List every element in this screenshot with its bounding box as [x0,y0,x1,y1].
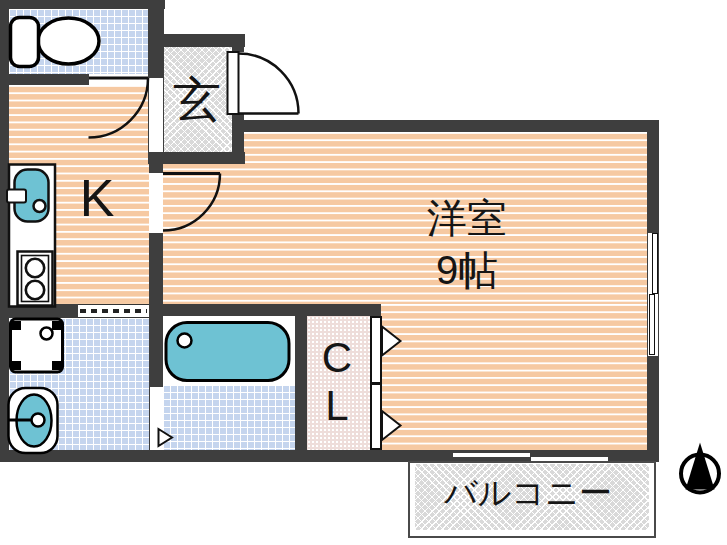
closet-label-line2: L [322,382,352,430]
wall-outer-left [0,0,9,462]
closet-label-line1: C [322,334,352,382]
window-right-pane-2 [649,294,655,355]
wall-outer-top [0,0,165,9]
opening-kitchen-main [149,173,163,233]
accordion-dashes [80,309,147,313]
main-room-name: 洋室 [427,192,507,244]
bathroom-tile [163,385,295,450]
balcony-label: バルコニー [444,472,612,515]
washroom-floor [9,318,149,450]
main-room-label: 洋室 9帖 [427,192,507,296]
wall-bath-closet [295,304,307,450]
balcony-sliding-door-pane-1 [453,453,530,457]
wall-entrance-top [148,34,245,47]
wall-toilet-bottom [8,74,89,85]
closet-door-divider [372,382,380,385]
opening-kitchen-entrance [149,78,163,152]
wall-entrance-bottom [148,152,245,164]
kitchen-label: K [80,165,115,233]
wall-washroom-top [8,304,79,318]
main-room-size: 9帖 [427,244,507,296]
north-arrow-icon [681,443,719,493]
toilet-floor [9,9,149,74]
accordion-opening-kitchen-washroom [78,304,149,318]
wall-bath-closet-top [149,304,381,316]
closet-door-strip [370,316,382,450]
window-right-pane-1 [652,233,658,294]
opening-entrance-door [233,52,244,114]
opening-toilet-door [89,74,148,85]
wall-main-top [244,120,659,132]
main-room-floor-lower [381,304,648,450]
closet-label: C L [322,334,352,431]
floor-plan: 玄 K 洋室 9帖 C L バルコニー [0,0,727,545]
opening-bathroom-door [150,387,163,450]
entrance-label: 玄 [173,69,221,131]
